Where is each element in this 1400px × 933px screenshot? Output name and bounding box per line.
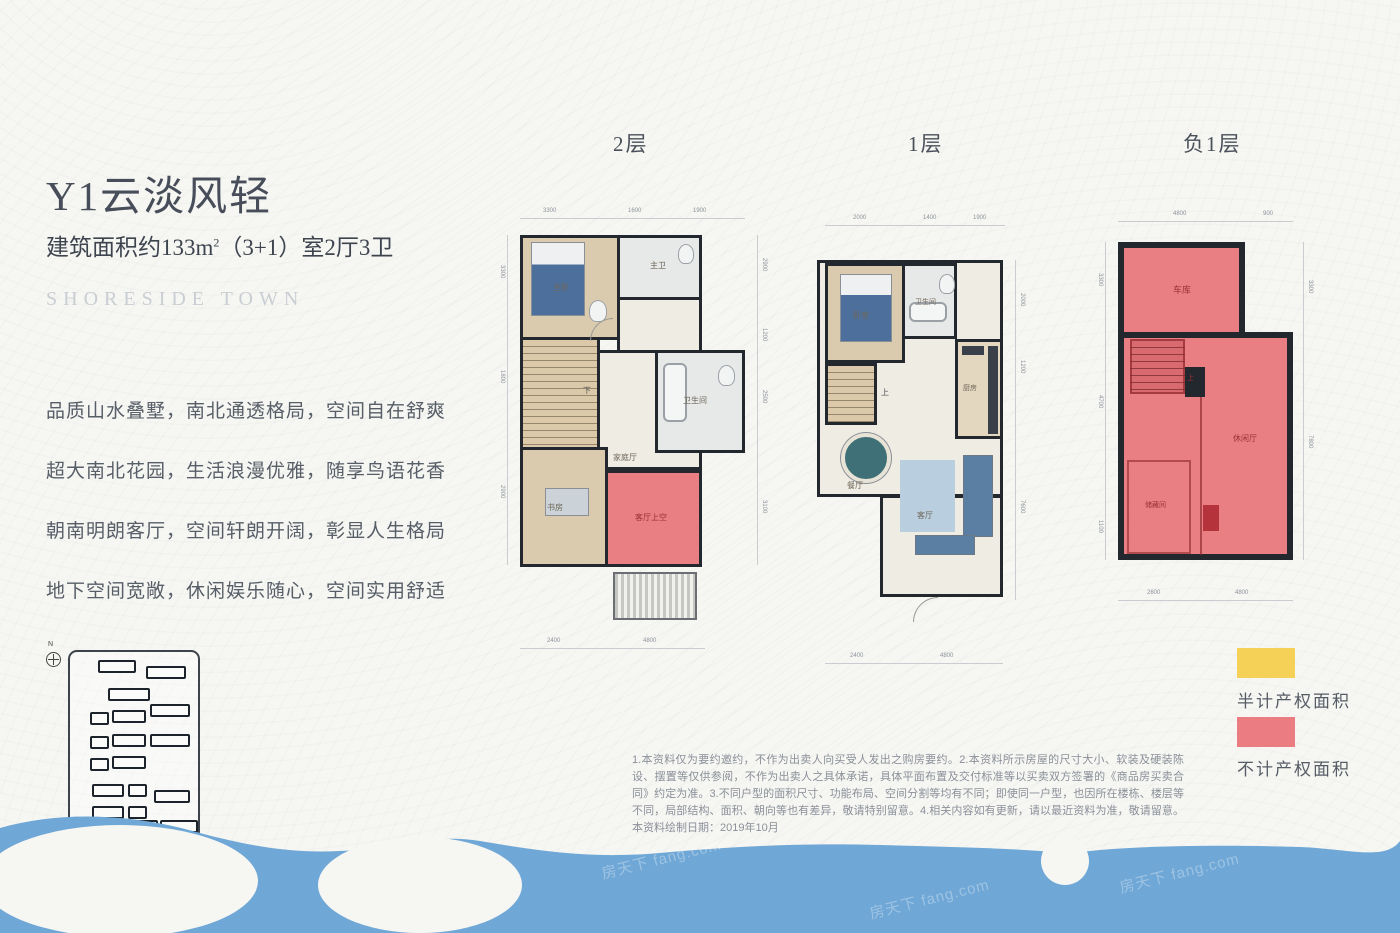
dim-label: 1800 bbox=[499, 370, 505, 383]
building-footprint bbox=[128, 784, 147, 797]
room-label-bathroom: 卫生间 bbox=[915, 297, 936, 307]
dim-label: 4800 bbox=[1235, 590, 1248, 596]
room-label-stairs-up: 上 bbox=[881, 387, 889, 398]
room-stairs bbox=[825, 363, 877, 425]
dim-label: 3300 bbox=[499, 265, 505, 278]
dim-label: 1100 bbox=[1097, 520, 1103, 533]
plan-label-floor1: 1层 bbox=[908, 128, 944, 158]
room-label-study: 书房 bbox=[547, 502, 563, 513]
room-label-void: 客厅上空 bbox=[635, 512, 667, 523]
plan-label-basement: 负1层 bbox=[1183, 128, 1242, 158]
room-label-rec: 休闲厅 bbox=[1233, 433, 1257, 444]
dim-label: 1900 bbox=[693, 208, 706, 214]
room-label-storage: 储藏间 bbox=[1145, 500, 1166, 510]
building-footprint bbox=[108, 688, 150, 701]
building-footprint bbox=[90, 736, 109, 749]
dim-label: 7800 bbox=[1307, 435, 1313, 448]
building-footprint bbox=[146, 666, 186, 679]
dim-label: 3300 bbox=[1097, 273, 1103, 286]
building-footprint bbox=[150, 704, 190, 717]
floorplan-basement: 4800 900 3300 4700 1100 3300 7800 2600 4… bbox=[1085, 195, 1320, 615]
dining-table bbox=[841, 433, 891, 483]
legend-label-half-property: 半计产权面积 bbox=[1237, 687, 1351, 712]
room-label-living: 客厅 bbox=[917, 510, 933, 521]
room-study bbox=[520, 447, 608, 567]
building-footprint bbox=[98, 660, 136, 673]
dim-label: 2000 bbox=[853, 215, 866, 221]
legend-label-not-counted: 不计产权面积 bbox=[1237, 755, 1351, 780]
floorplan-level1: 2000 1400 1900 2000 1200 7600 2400 4800 … bbox=[805, 205, 1030, 675]
dim-label: 2600 bbox=[1147, 590, 1160, 596]
room-stairs bbox=[1130, 339, 1185, 394]
brand-name: SHORESIDE TOWN bbox=[46, 288, 304, 311]
dim-label: 2000 bbox=[1019, 293, 1025, 306]
floorplan-level2: 3300 1600 1900 3300 1800 2900 2900 1200 … bbox=[495, 190, 770, 660]
entry-door-arc bbox=[913, 597, 938, 622]
building-footprint bbox=[112, 756, 146, 769]
building-footprint bbox=[154, 790, 190, 803]
dim-label: 1600 bbox=[628, 208, 641, 214]
compass-icon bbox=[46, 652, 61, 667]
room-label-garage: 车库 bbox=[1173, 283, 1191, 296]
building-footprint bbox=[92, 784, 124, 797]
room-label-master-bedroom: 主卧 bbox=[553, 282, 569, 293]
building-footprint bbox=[150, 734, 190, 747]
dim-label: 1400 bbox=[923, 215, 936, 221]
room-label-bedroom: 卧室 bbox=[853, 310, 869, 321]
building-footprint bbox=[112, 734, 146, 747]
building-footprint bbox=[112, 710, 146, 723]
dim-label: 2500 bbox=[761, 390, 767, 403]
room-label-bathroom: 卫生间 bbox=[683, 395, 707, 406]
dim-label: 2900 bbox=[761, 258, 767, 271]
room-label-stairs-up: 上 bbox=[1187, 373, 1194, 383]
room-label-master-bath: 主卫 bbox=[650, 260, 666, 271]
feature-line: 地下空间宽敞，休闲娱乐随心，空间实用舒适 bbox=[46, 576, 446, 603]
area-suffix: （3+1）室2厅3卫 bbox=[219, 235, 393, 260]
dim-label: 2400 bbox=[547, 638, 560, 644]
legend-swatch-half-property bbox=[1237, 648, 1295, 678]
dim-label: 1200 bbox=[761, 328, 767, 341]
compass-north-label: N bbox=[48, 641, 53, 648]
feature-line: 超大南北花园，生活浪漫优雅，随享鸟语花香 bbox=[46, 456, 446, 483]
plan-label-floor2: 2层 bbox=[613, 128, 649, 158]
dim-label: 4700 bbox=[1097, 395, 1103, 408]
dim-label: 2900 bbox=[499, 485, 505, 498]
dim-label: 2400 bbox=[850, 653, 863, 659]
room-label-dining: 餐厅 bbox=[847, 480, 863, 491]
area-prefix: 建筑面积约133m bbox=[46, 235, 213, 260]
room-corridor bbox=[617, 297, 702, 353]
feature-line: 朝南明朗客厅，空间轩朗开阔，彰显人生格局 bbox=[46, 516, 446, 543]
dim-label: 4800 bbox=[643, 638, 656, 644]
room-label-family-hall: 家庭厅 bbox=[613, 452, 637, 463]
dim-label: 7600 bbox=[1019, 500, 1025, 513]
dim-label: 1200 bbox=[1019, 360, 1025, 373]
building-footprint bbox=[90, 712, 109, 725]
floorplan-brochure: { "meta": { "brand": "SHORESIDE TOWN", "… bbox=[0, 0, 1400, 933]
page-title: Y1云淡风轻 bbox=[46, 162, 272, 222]
dim-label: 1900 bbox=[973, 215, 986, 221]
area-spec: 建筑面积约133m2（3+1）室2厅3卫 bbox=[46, 228, 393, 262]
feature-list: 品质山水叠墅，南北通透格局，空间自在舒爽 超大南北花园，生活浪漫优雅，随享鸟语花… bbox=[46, 396, 446, 636]
legend-swatch-not-counted bbox=[1237, 717, 1295, 747]
dim-label: 900 bbox=[1263, 211, 1273, 217]
dim-label: 3100 bbox=[761, 500, 767, 513]
building-footprint bbox=[90, 758, 109, 771]
feature-line: 品质山水叠墅，南北通透格局，空间自在舒爽 bbox=[46, 396, 446, 423]
dim-label: 3300 bbox=[1307, 280, 1313, 293]
dim-label: 3300 bbox=[543, 208, 556, 214]
deck-steps bbox=[613, 572, 697, 620]
room-label-stairs-down: 下 bbox=[583, 385, 591, 396]
dim-label: 4800 bbox=[1173, 211, 1186, 217]
dim-label: 4800 bbox=[940, 653, 953, 659]
room-label-kitchen: 厨房 bbox=[963, 383, 977, 393]
